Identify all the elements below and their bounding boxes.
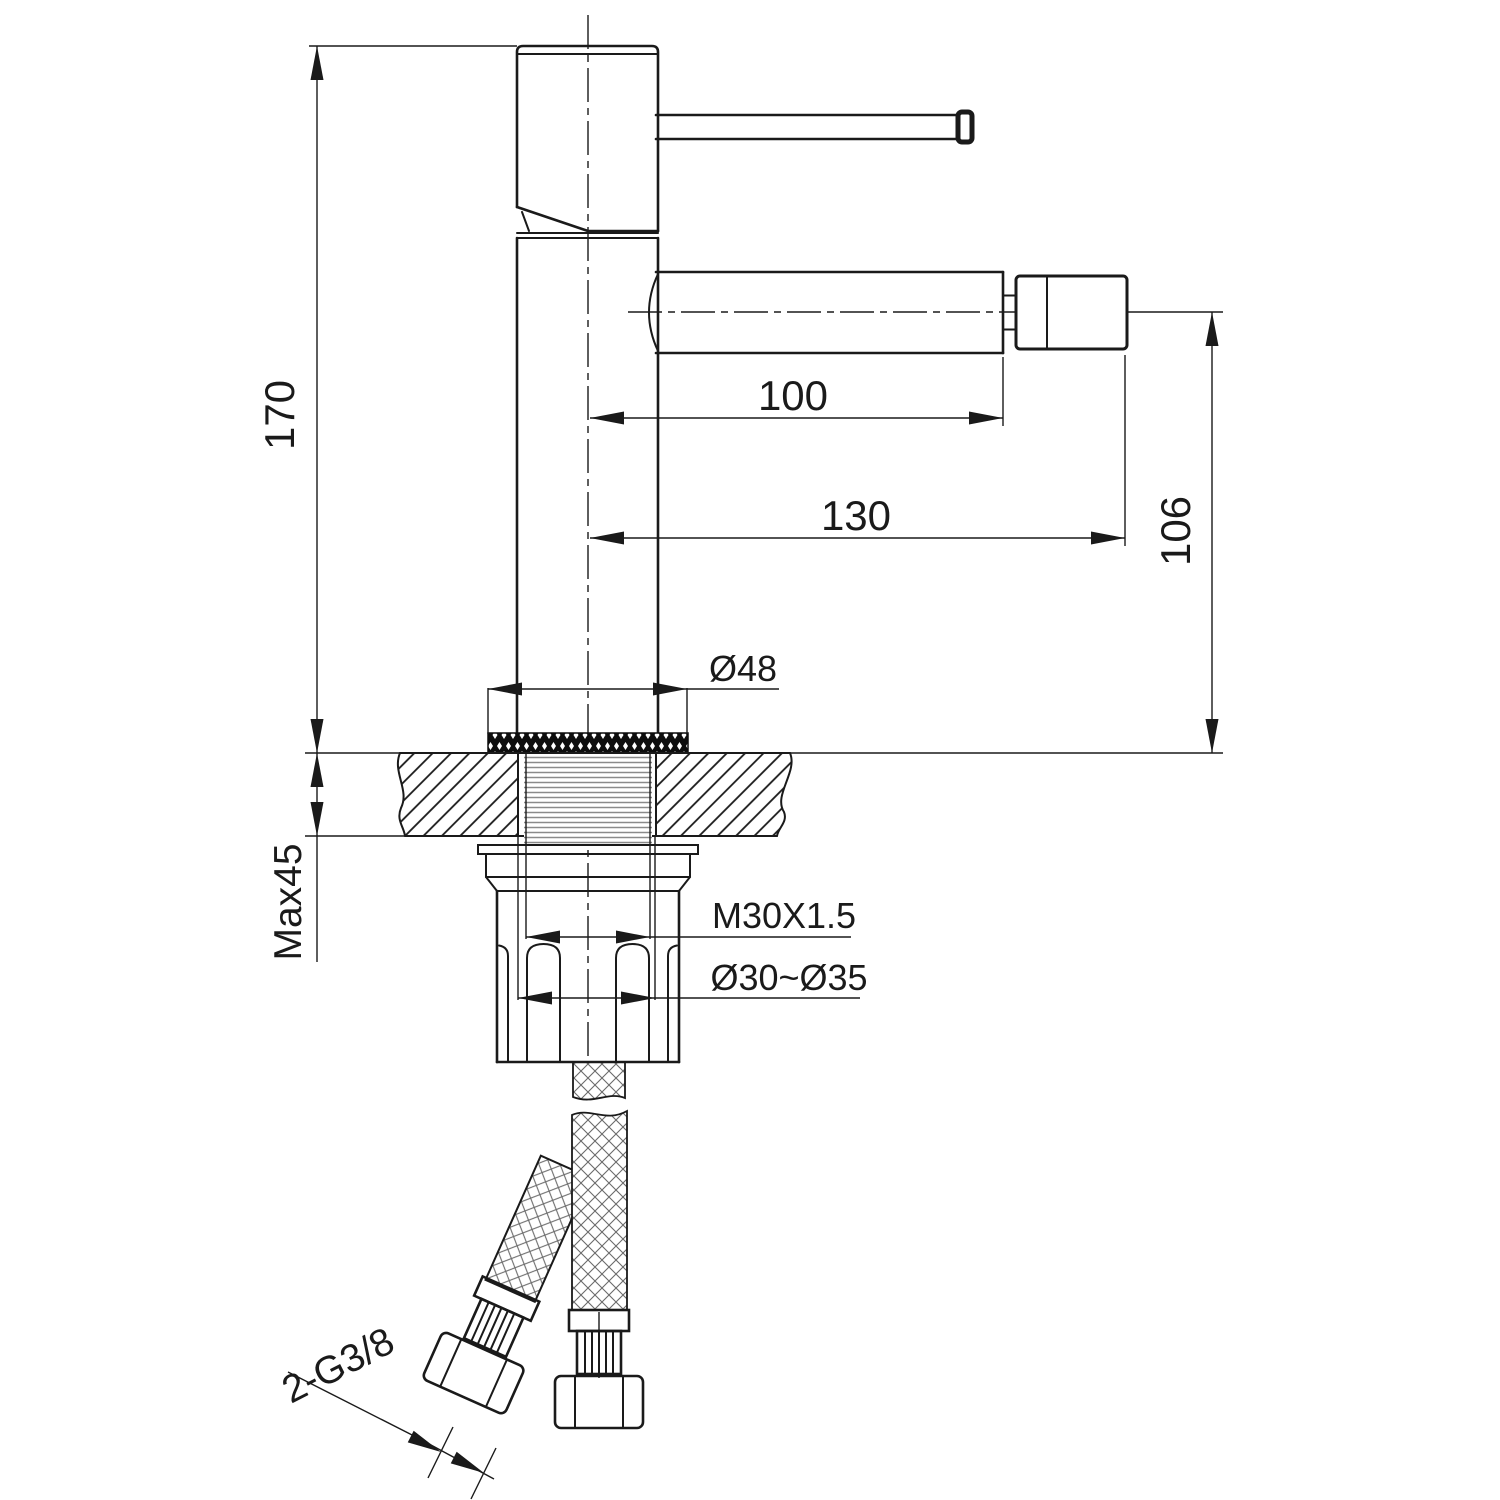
dim-base-diameter-label: Ø48 (709, 648, 777, 689)
hose-left-ribbed-neck (464, 1299, 524, 1357)
centerlines (588, 15, 1136, 1378)
dim-overall-height: 170 (256, 46, 517, 753)
aerator (1016, 276, 1127, 349)
dim-overall-reach-label: 130 (821, 492, 891, 539)
supply-hose-right (555, 1062, 643, 1428)
faucet-dimension-drawing: 170 Max45 Ø48 100 130 106 (0, 0, 1500, 1500)
countertop-section (305, 753, 1223, 836)
dim-max-deck-thickness-label: Max45 (267, 843, 310, 960)
dim-max-deck-thickness: Max45 (267, 753, 324, 962)
threaded-shank (524, 754, 652, 844)
dim-overall-reach: 130 (590, 355, 1125, 546)
dim-overall-height-label: 170 (256, 380, 303, 450)
hose-left-hex-nut (422, 1331, 525, 1415)
technical-drawing-page: 170 Max45 Ø48 100 130 106 (0, 0, 1500, 1500)
dim-spout-height: 106 (1136, 312, 1223, 753)
dim-hole-diameter: Ø30~Ø35 (518, 957, 868, 1005)
dim-spout-reach: 100 (590, 357, 1003, 426)
lever-end-cap (958, 112, 972, 142)
hose-right-hex-nut (555, 1376, 643, 1428)
handle-lever (656, 112, 972, 142)
base-mounting-ring (488, 733, 688, 753)
dim-shank-thread-label: M30X1.5 (712, 895, 856, 936)
dim-shank-thread: M30X1.5 (526, 895, 856, 944)
dim-spout-height-label: 106 (1152, 496, 1199, 566)
dim-base-diameter: Ø48 (488, 648, 779, 734)
hose-right-ribbed-neck (577, 1331, 621, 1374)
dim-hole-diameter-label: Ø30~Ø35 (710, 957, 867, 998)
dim-spout-reach-label: 100 (758, 372, 828, 419)
dim-hose-thread: 2-G3/8 (275, 1320, 496, 1499)
